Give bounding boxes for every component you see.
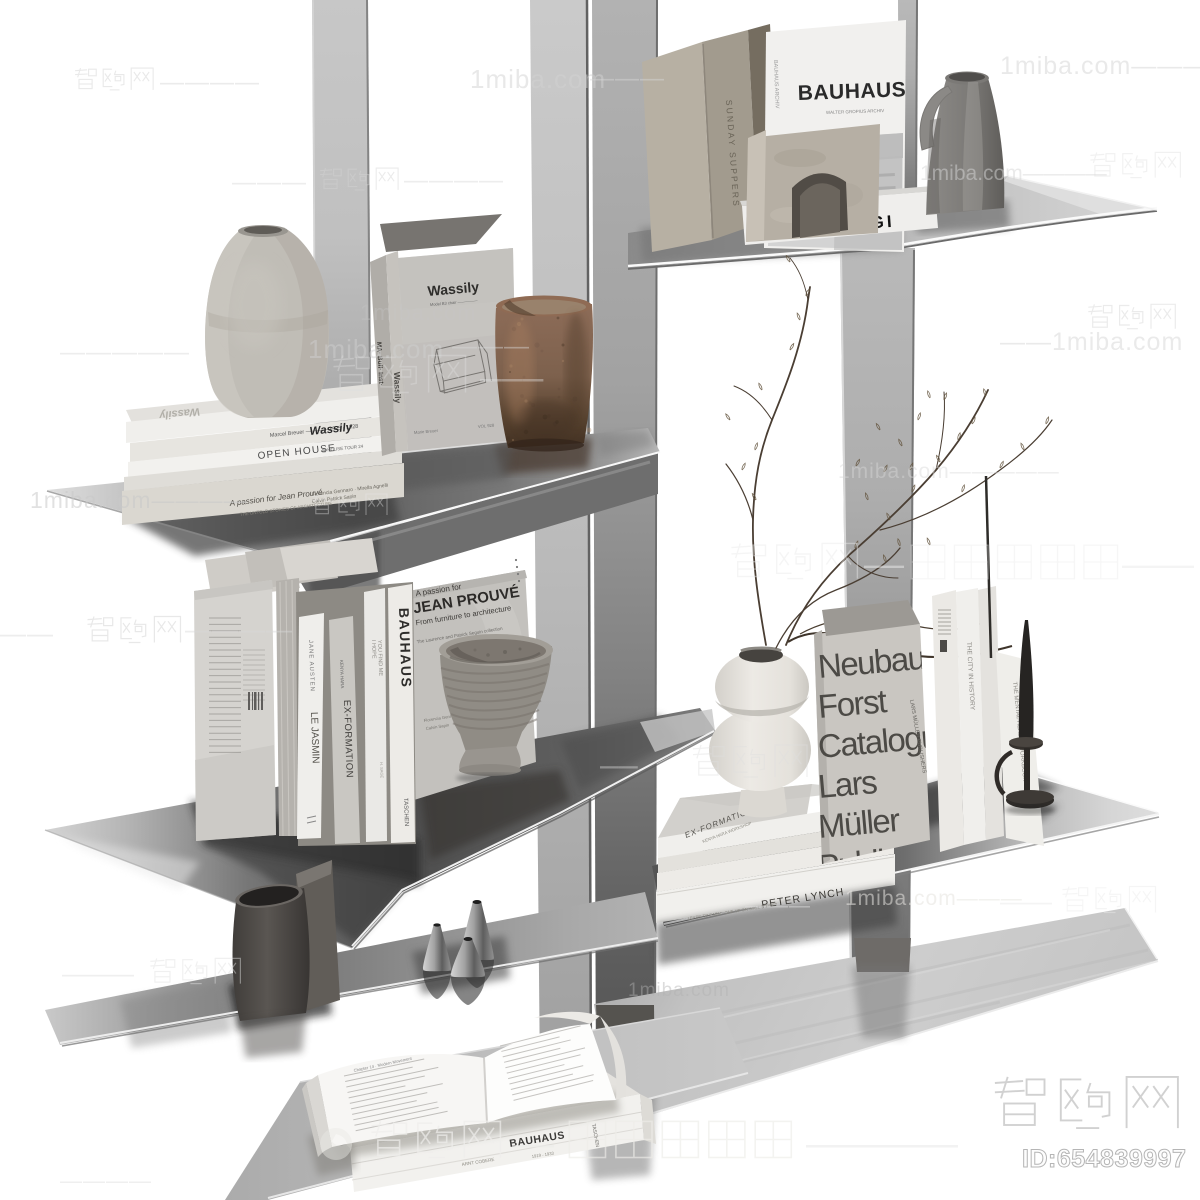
svg-text:BAUHAUS: BAUHAUS — [797, 78, 906, 105]
svg-text:––: –– — [864, 543, 904, 584]
svg-text:Müller: Müller — [816, 801, 901, 845]
svg-text:1miba.com: 1miba.com — [628, 980, 730, 1001]
svg-text:—————: ————— — [60, 338, 190, 366]
svg-text:————: ———— — [404, 167, 504, 194]
svg-text:1miba.com: 1miba.com — [308, 334, 444, 364]
svg-text:———: ——— — [745, 894, 811, 917]
svg-text:––: –– — [512, 1123, 555, 1165]
svg-text:————: ———— — [806, 1123, 958, 1165]
svg-text:–––: ––– — [480, 357, 544, 399]
svg-text:BAUHAUS: BAUHAUS — [396, 608, 415, 689]
svg-text:1miba.com———: 1miba.com——— — [1000, 52, 1200, 80]
svg-text:––: –– — [600, 746, 638, 784]
svg-text:——: —— — [0, 618, 54, 648]
svg-text:1miba.com: 1miba.com — [470, 64, 606, 94]
svg-text:1miba.com: 1miba.com — [360, 300, 477, 325]
svg-text:———: ——— — [62, 961, 134, 988]
svg-text:——1miba.com: ——1miba.com — [1000, 328, 1183, 356]
svg-text:LE JASMIN: LE JASMIN — [308, 712, 321, 764]
svg-text:H. SAGE: H. SAGE — [379, 762, 385, 779]
svg-text:YOU FIND ME: YOU FIND ME — [376, 640, 383, 677]
svg-text:Forst: Forst — [816, 682, 888, 725]
svg-text:1miba.com————: 1miba.com———— — [920, 162, 1107, 185]
svg-text:————: ———— — [160, 69, 260, 96]
svg-text:KENYA HARA: KENYA HARA — [339, 660, 345, 689]
svg-text:TASCHEN: TASCHEN — [402, 798, 409, 826]
svg-text:I HOPE: I HOPE — [370, 640, 377, 659]
svg-text:———: ——— — [590, 65, 665, 92]
svg-text:————: ———— — [185, 614, 293, 644]
svg-text:———: ——— — [232, 169, 307, 196]
svg-text:1miba.com———: 1miba.com——— — [845, 887, 1023, 910]
svg-text:ID:654839997: ID:654839997 — [1022, 1145, 1186, 1173]
svg-text:————: ———— — [60, 1168, 152, 1193]
svg-text:——: —— — [1000, 886, 1052, 916]
svg-text:Lars: Lars — [816, 763, 878, 805]
svg-text:1miba.com—————: 1miba.com————— — [838, 460, 1060, 483]
svg-text:——: —— — [1122, 543, 1194, 584]
svg-text:1miba.com————: 1miba.com———— — [30, 487, 247, 513]
